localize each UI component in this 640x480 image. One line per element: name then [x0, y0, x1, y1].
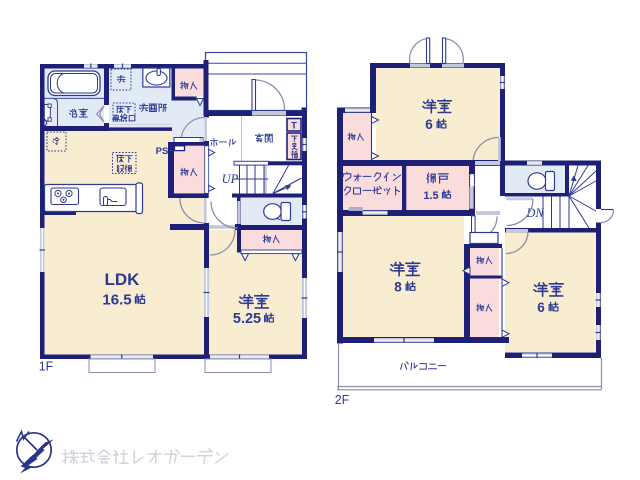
svg-text:6: 6 — [537, 300, 545, 315]
svg-text:8: 8 — [394, 280, 402, 295]
svg-text:6: 6 — [425, 117, 433, 132]
svg-text:1F: 1F — [39, 360, 54, 374]
svg-text:DN: DN — [525, 206, 544, 220]
svg-text:2F: 2F — [335, 393, 350, 407]
svg-text:1.5: 1.5 — [423, 190, 438, 202]
svg-text:PS: PS — [156, 146, 169, 157]
svg-text:T: T — [291, 121, 297, 132]
svg-text:UP: UP — [222, 172, 239, 186]
svg-text:16.5: 16.5 — [102, 292, 131, 309]
svg-text:LDK: LDK — [105, 270, 141, 289]
svg-text:5.25: 5.25 — [233, 311, 261, 327]
